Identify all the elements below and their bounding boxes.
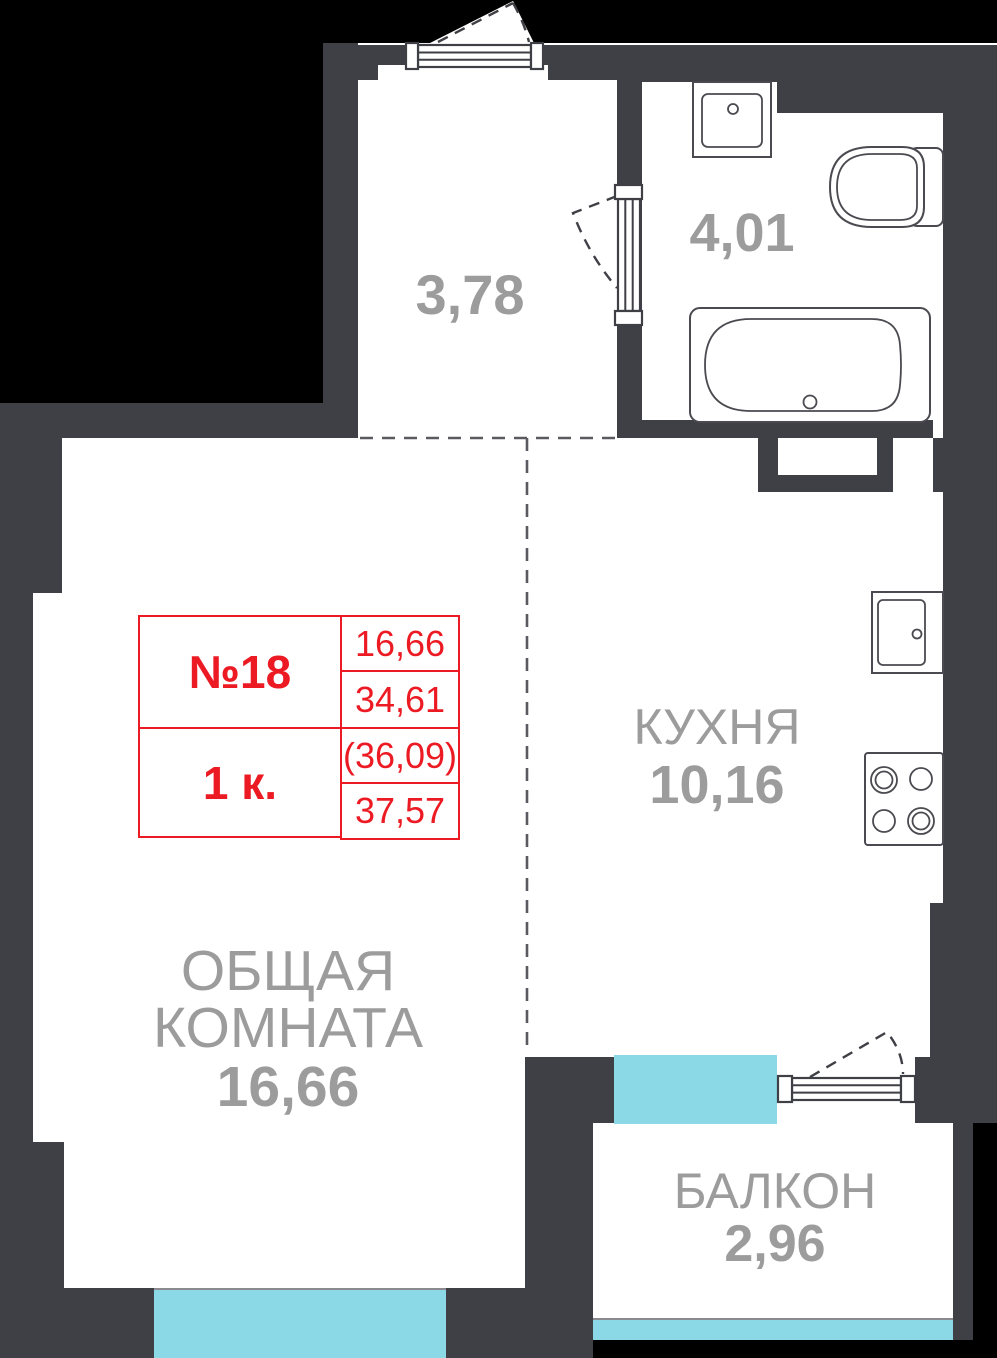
wall-segment [930,903,997,1057]
exterior-mask-top-left [0,0,323,403]
wall-segment [617,420,933,438]
floorplan-canvas: 3,78 4,01 КУХНЯ 10,16 ОБЩАЯ КОМНАТА 16,6… [0,0,997,1358]
stove-burner [910,768,932,790]
exterior-mask-top [323,0,997,43]
stove-burner [913,813,930,830]
wall-segment [323,43,358,403]
kitchen-area-label: 10,16 [567,758,867,812]
toilet-tank [910,148,943,226]
bathtub-icon [690,308,930,422]
room-count-cell: 1 к. [138,727,342,838]
kitchen-name-label: КУХНЯ [567,702,867,752]
living-room-name-line1: ОБЩАЯ [138,943,438,1000]
bathtub-inner [705,319,901,411]
living-room-area-label: 16,66 [138,1059,438,1116]
balcony-railing [593,1318,953,1340]
wall-segment [0,1288,154,1358]
area-cell: 34,61 [340,670,460,729]
bathroom-area-label: 4,01 [617,206,867,260]
wall-segment [953,1123,973,1340]
kitchen-sink-basin [878,600,925,665]
exterior-mask-right [973,1123,997,1358]
kitchen-sink-handle [913,630,922,639]
balcony-door-jamb [901,1076,915,1102]
entrance-door-recess [378,65,548,80]
bathtub-drain [804,396,817,409]
window-balcony [614,1055,777,1124]
kitchen-sink-icon [872,592,943,673]
balcony-name-label: БАЛКОН [625,1166,925,1216]
balcony-door-swing [810,1032,903,1077]
bathroom-alcove [642,82,777,113]
window-living-room [154,1288,446,1358]
wall-segment [915,1057,997,1123]
balcony-area-label: 2,96 [625,1218,925,1270]
balcony-door-jamb [778,1076,792,1102]
wall-segment [446,1288,593,1358]
wall-segment [525,1057,615,1123]
hallway-area-label: 3,78 [345,267,595,323]
stove-icon [865,753,943,845]
wall-segment [0,593,33,1142]
exterior-mask-bottom [590,1340,997,1358]
wall-segment [0,438,62,593]
balcony-door [792,1078,901,1100]
wall-segment [0,403,358,438]
balcony-door-lines [792,1085,901,1092]
unit-number-cell: №18 [138,615,342,729]
wall-segment [943,113,997,438]
stove-burner [876,772,893,789]
stove-burner [873,810,895,832]
wall-segment [933,438,943,492]
stove-burner [908,808,934,834]
total-area-cell: 37,57 [340,782,460,840]
living-room-name-line2: КОМНАТА [138,1000,438,1057]
vent-shaft-opening [778,438,877,475]
area-with-coef-cell: (36,09) [340,727,460,784]
stove-burner [871,767,897,793]
living-area-cell: 16,66 [340,615,460,672]
wall-segment [943,438,997,903]
